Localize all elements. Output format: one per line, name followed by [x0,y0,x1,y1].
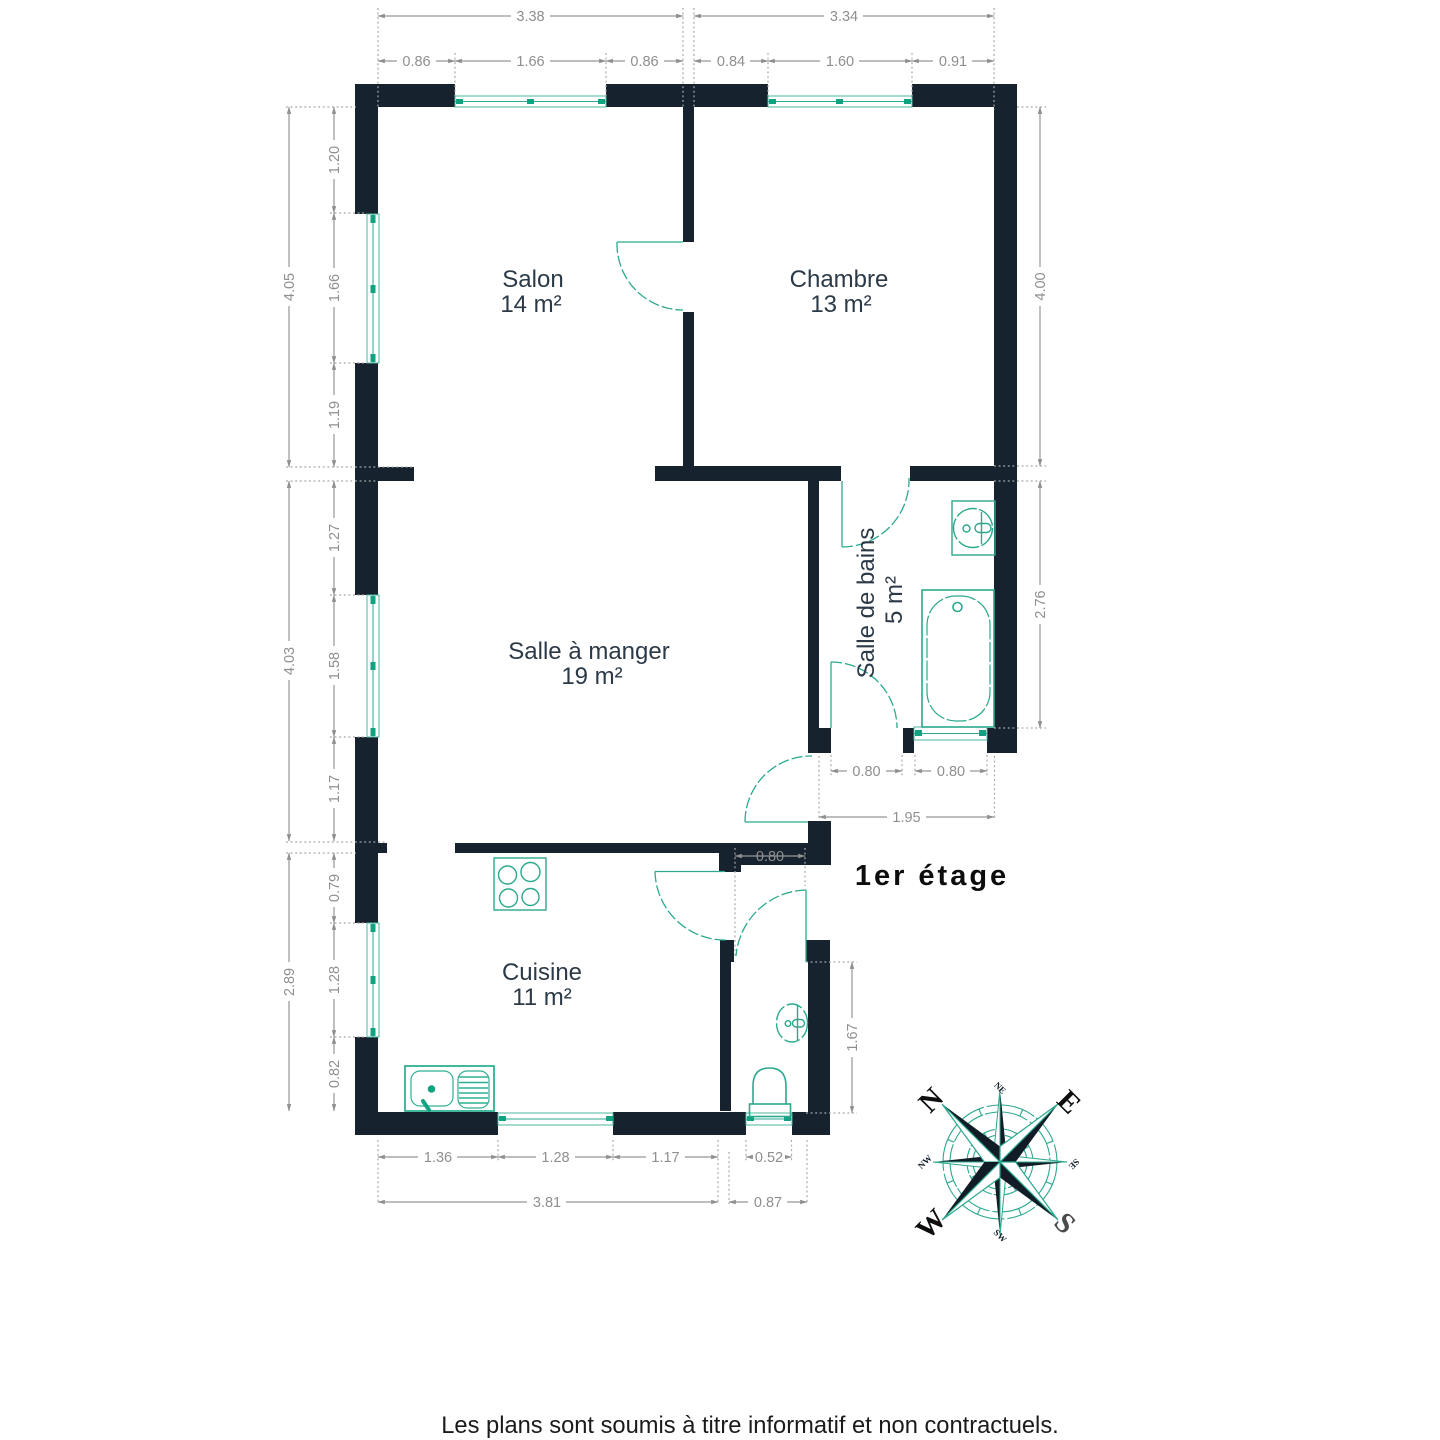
svg-text:1.20: 1.20 [327,146,343,174]
svg-text:1.95: 1.95 [892,810,920,826]
svg-text:Les plans sont soumis à titre: Les plans sont soumis à titre informatif… [441,1413,1059,1439]
svg-text:SW: SW [992,1227,1009,1244]
svg-text:1.17: 1.17 [327,775,343,803]
svg-text:NE: NE [992,1080,1008,1096]
svg-text:0.79: 0.79 [327,874,343,902]
svg-text:W: W [910,1203,953,1246]
svg-text:1.66: 1.66 [327,274,343,302]
svg-text:Cuisine: Cuisine [502,959,582,986]
svg-text:3.81: 3.81 [533,1195,561,1211]
svg-text:NW: NW [916,1153,934,1171]
svg-text:2.76: 2.76 [1033,590,1049,618]
svg-text:1.67: 1.67 [845,1023,861,1051]
svg-text:0.80: 0.80 [937,764,965,780]
svg-text:4.00: 4.00 [1033,272,1049,300]
svg-text:1.28: 1.28 [541,1150,569,1166]
svg-text:0.52: 0.52 [755,1150,783,1166]
svg-text:1.60: 1.60 [826,54,854,70]
svg-text:0.82: 0.82 [327,1060,343,1088]
svg-text:0.80: 0.80 [756,849,784,865]
svg-text:0.91: 0.91 [939,54,967,70]
svg-text:11 m²: 11 m² [512,984,572,1011]
svg-text:1.58: 1.58 [327,652,343,680]
svg-text:19 m²: 19 m² [561,663,622,690]
svg-text:1.19: 1.19 [327,401,343,429]
svg-text:2.89: 2.89 [282,968,298,996]
svg-text:Salle à manger: Salle à manger [508,638,669,665]
svg-text:3.34: 3.34 [830,9,858,25]
svg-text:1.27: 1.27 [327,524,343,552]
svg-text:13 m²: 13 m² [810,291,871,318]
svg-text:14 m²: 14 m² [500,291,561,318]
svg-text:0.86: 0.86 [630,54,658,70]
svg-text:5 m²: 5 m² [881,576,908,624]
svg-text:1.17: 1.17 [651,1150,679,1166]
svg-text:Salle de bains: Salle de bains [853,528,880,679]
svg-text:1.36: 1.36 [424,1150,452,1166]
svg-text:4.03: 4.03 [282,647,298,675]
svg-text:0.84: 0.84 [717,54,745,70]
svg-text:0.87: 0.87 [754,1195,782,1211]
svg-text:1er étage: 1er étage [855,860,1009,892]
svg-text:Salon: Salon [502,266,563,293]
svg-text:SE: SE [1067,1157,1082,1172]
svg-text:1.66: 1.66 [516,54,544,70]
svg-text:E: E [1051,1084,1087,1120]
svg-text:4.05: 4.05 [282,273,298,301]
svg-text:0.80: 0.80 [852,764,880,780]
svg-text:N: N [913,1082,950,1119]
svg-text:1.28: 1.28 [327,966,343,994]
svg-text:3.38: 3.38 [516,9,544,25]
svg-text:Chambre: Chambre [790,266,889,293]
svg-text:0.86: 0.86 [402,54,430,70]
svg-text:S: S [1048,1206,1082,1240]
